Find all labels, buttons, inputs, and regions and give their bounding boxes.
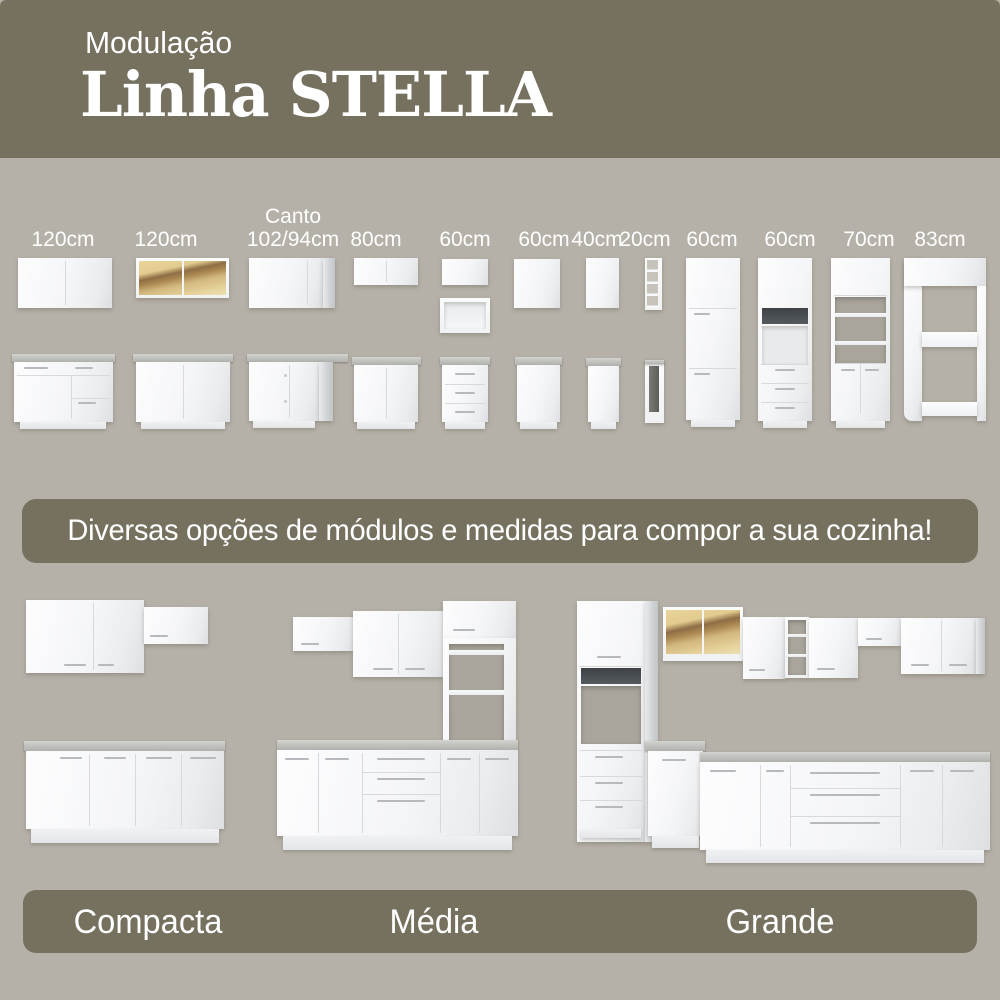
grande-wall-run-right bbox=[901, 618, 976, 674]
plinth bbox=[20, 422, 106, 429]
base-cabinet-1door-graphic bbox=[588, 366, 619, 422]
shelf bbox=[835, 313, 886, 317]
niche-interior bbox=[444, 302, 486, 329]
corner-wall-cabinet-graphic bbox=[249, 258, 323, 308]
module-label-8: 20cm bbox=[619, 229, 670, 251]
grande-plinth-right bbox=[706, 850, 984, 863]
module-label-6: 60cm bbox=[518, 229, 569, 251]
wall-cabinet-low-graphic bbox=[442, 259, 488, 285]
shelf bbox=[449, 690, 504, 695]
open-shelf-area bbox=[835, 297, 886, 363]
plinth bbox=[763, 421, 807, 428]
plinth bbox=[520, 422, 557, 429]
compacta-wall-cabinets bbox=[26, 600, 144, 673]
base-cabinet-1door-graphic bbox=[517, 365, 560, 422]
wall-cabinet-low-graphic bbox=[354, 258, 418, 285]
module-label-10: 60cm bbox=[764, 229, 815, 251]
tower-open-interior bbox=[581, 686, 641, 744]
module-label-4: 80cm bbox=[350, 229, 401, 251]
module-label-5: 60cm bbox=[439, 229, 490, 251]
base-cabinet-3drawer-graphic bbox=[442, 365, 488, 422]
shelf bbox=[788, 654, 806, 657]
oven-niche bbox=[581, 668, 641, 684]
base-cabinet-drawers-doors-graphic bbox=[14, 362, 113, 422]
wall-shelf-unit-graphic bbox=[645, 258, 662, 310]
grande-plinth-left bbox=[652, 836, 699, 848]
compacta-plinth bbox=[31, 829, 219, 843]
grande-corner-open-shelf bbox=[785, 617, 809, 678]
countertop bbox=[133, 354, 233, 362]
module-label-1: 120cm bbox=[31, 229, 94, 251]
corner-base-side-panel bbox=[319, 362, 333, 421]
countertop bbox=[12, 354, 115, 362]
module-label-3-line2: 102/94cm bbox=[247, 229, 339, 251]
wall-cabinet-2door-graphic bbox=[18, 258, 112, 308]
module-label-12: 83cm bbox=[914, 229, 965, 251]
fridge-frame-shelf bbox=[922, 332, 977, 347]
media-countertop bbox=[277, 740, 518, 750]
fridge-frame-right-pillar bbox=[977, 286, 986, 421]
glass-mullion bbox=[182, 261, 184, 295]
media-wall-cabinet-left bbox=[293, 617, 353, 651]
open-compartment bbox=[762, 326, 808, 364]
plinth bbox=[691, 420, 735, 427]
promo-page: Modulação Linha STELLA 120cm 120cm Canto… bbox=[0, 0, 1000, 1000]
kitchen-label-compacta: Compacta bbox=[74, 903, 223, 942]
oven-niche bbox=[762, 308, 808, 324]
media-plinth bbox=[283, 836, 512, 850]
grande-wall-run-short bbox=[858, 618, 901, 646]
wall-cabinet-1door-graphic bbox=[514, 259, 560, 308]
countertop bbox=[515, 357, 562, 365]
countertop bbox=[352, 357, 421, 365]
countertop bbox=[645, 360, 664, 364]
corner-base-cabinet-graphic bbox=[249, 362, 319, 421]
grande-base-right bbox=[700, 762, 990, 850]
grande-oven-tower bbox=[577, 601, 645, 842]
module-label-3-line1: Canto bbox=[265, 206, 321, 228]
grande-countertop-left bbox=[645, 741, 705, 751]
grande-wall-end-panel bbox=[976, 618, 985, 674]
media-tower-top-cabinet bbox=[443, 601, 516, 638]
module-label-7: 40cm bbox=[571, 229, 622, 251]
open-interior bbox=[649, 366, 659, 412]
media-wall-cabinets bbox=[353, 611, 443, 677]
shelf bbox=[835, 341, 886, 345]
shelf-cubbies bbox=[647, 260, 658, 308]
header-band: Modulação Linha STELLA bbox=[0, 0, 1000, 158]
tall-hutch-cabinet-graphic bbox=[831, 258, 890, 421]
compacta-base-run bbox=[26, 751, 224, 829]
tall-oven-tower-graphic bbox=[758, 258, 812, 421]
banner-text: Diversas opções de módulos e medidas par… bbox=[68, 514, 933, 548]
corner-wall-side-panel bbox=[323, 258, 335, 308]
module-label-2: 120cm bbox=[134, 229, 197, 251]
media-base-run bbox=[277, 750, 518, 836]
shelf-interior bbox=[788, 620, 806, 675]
plinth bbox=[581, 829, 641, 838]
base-cabinet-2door-graphic bbox=[136, 362, 230, 422]
grande-countertop-right bbox=[700, 752, 990, 762]
plinth bbox=[836, 421, 885, 428]
compacta-countertop bbox=[24, 741, 225, 751]
banner: Diversas opções de módulos e medidas par… bbox=[22, 499, 978, 563]
plinth bbox=[591, 422, 616, 429]
plinth bbox=[445, 422, 485, 429]
kitchen-label-media: Média bbox=[390, 903, 479, 942]
kitchen-label-grande: Grande bbox=[726, 903, 835, 942]
plinth bbox=[141, 422, 225, 429]
fridge-frame-bottom-band bbox=[922, 402, 977, 416]
grande-glass-wall-cabinet bbox=[663, 607, 743, 661]
countertop bbox=[440, 357, 490, 365]
open-niche-graphic bbox=[440, 298, 490, 333]
base-open-unit-graphic bbox=[645, 360, 664, 423]
wall-cabinet-1door-graphic bbox=[586, 258, 619, 308]
base-cabinet-2door-graphic bbox=[354, 365, 418, 422]
module-label-11: 70cm bbox=[843, 229, 894, 251]
corner-countertop bbox=[247, 354, 348, 362]
header-eyebrow: Modulação bbox=[85, 25, 232, 61]
page-title: Linha STELLA bbox=[80, 62, 551, 128]
grande-base-left bbox=[648, 751, 703, 836]
grande-wall-run-left bbox=[809, 618, 858, 678]
module-label-9: 60cm bbox=[686, 229, 737, 251]
plinth bbox=[253, 421, 315, 428]
plinth bbox=[357, 422, 415, 429]
compacta-wall-cabinet-right bbox=[144, 607, 208, 644]
fridge-frame-top-cabinet bbox=[904, 258, 986, 286]
tall-pantry-cabinet-graphic bbox=[686, 258, 740, 420]
wall-cabinet-glass-graphic bbox=[136, 258, 229, 298]
shelf bbox=[788, 634, 806, 637]
countertop bbox=[586, 358, 621, 366]
media-tower-open-body bbox=[443, 638, 516, 750]
grande-wall-cabinet bbox=[743, 617, 785, 679]
shelf bbox=[449, 650, 504, 655]
glass-mullion bbox=[702, 610, 704, 654]
